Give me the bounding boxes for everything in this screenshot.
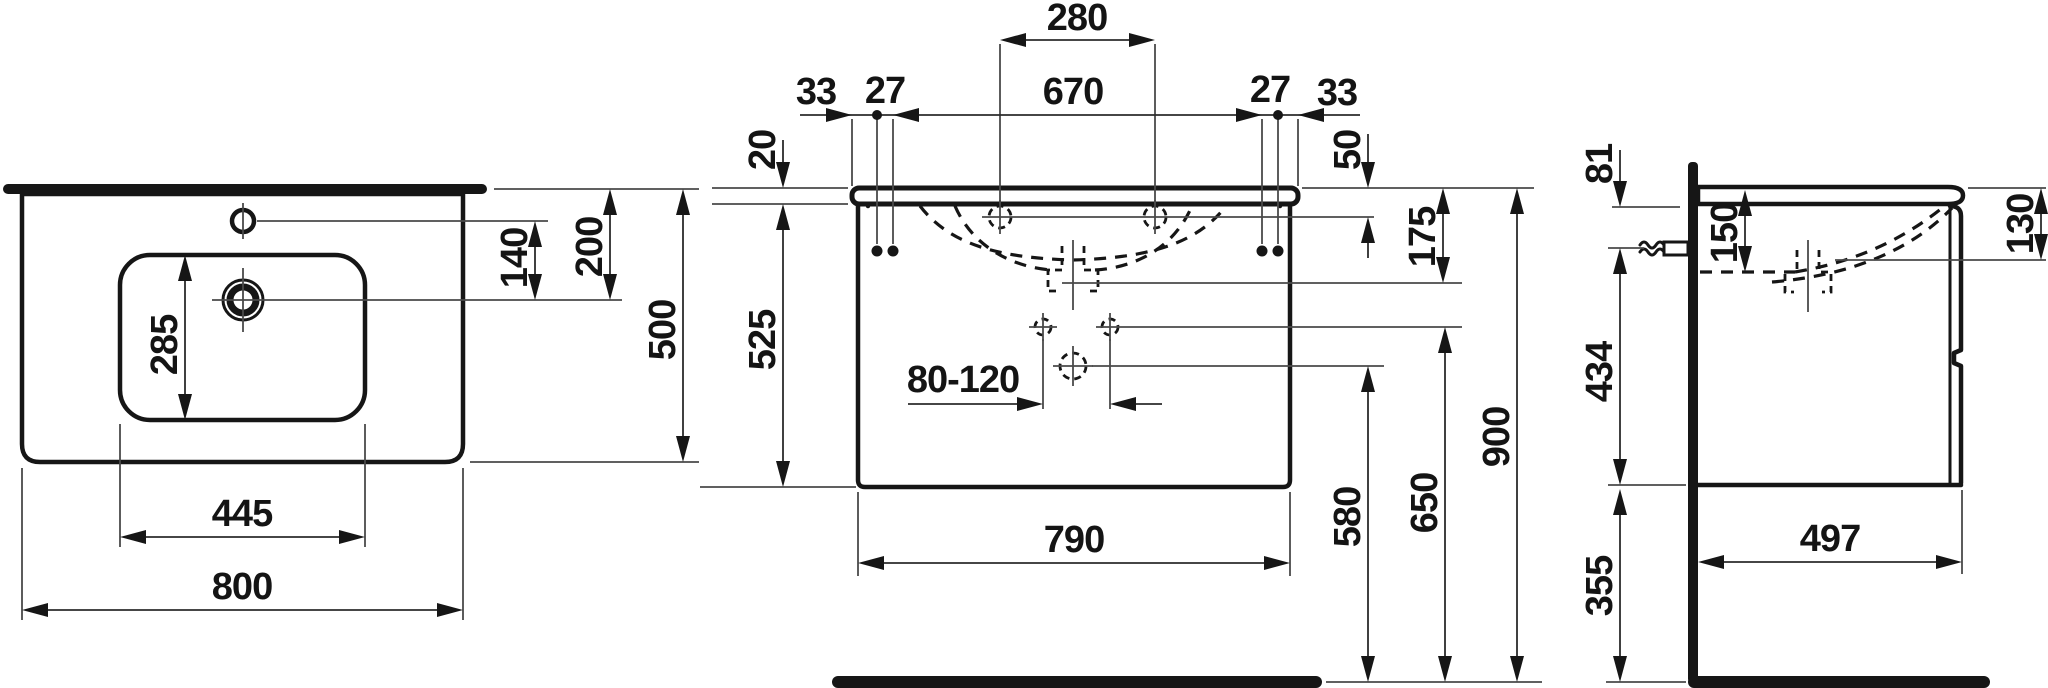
waste-outlet-circle — [1053, 346, 1093, 386]
dim-cabinet-height-525: 525 — [742, 204, 790, 487]
dim-label-790: 790 — [1044, 519, 1104, 561]
dim-label-497: 497 — [1800, 518, 1860, 560]
dim-rear-drain-200: 200 — [569, 189, 617, 300]
top-view: 285 140 200 500 445 — [3, 184, 699, 620]
floor-bar — [832, 676, 1322, 688]
dim-label-900: 900 — [1476, 407, 1518, 467]
dim-label-175: 175 — [1402, 206, 1444, 267]
dim-label-80-120: 80-120 — [907, 359, 1019, 401]
fixing-hole-dots — [872, 246, 1284, 257]
dim-slab-thickness-20: 20 — [742, 130, 790, 188]
technical-drawing-canvas: 285 140 200 500 445 — [0, 0, 2048, 688]
dim-rim-to-tap-50: 50 — [1327, 130, 1375, 258]
dim-label-27-right: 27 — [1250, 69, 1290, 111]
dim-cabinet-width-790: 790 — [858, 519, 1290, 570]
dim-rim-to-overflow-175: 175 — [1402, 188, 1450, 283]
dim-label-445: 445 — [212, 493, 273, 535]
dim-cabinet-depth-497: 497 — [1698, 518, 1962, 569]
dim-label-200: 200 — [569, 217, 611, 277]
dim-rim-to-floor-900: 900 — [1476, 188, 1524, 682]
dim-label-355: 355 — [1579, 555, 1621, 616]
dim-bowl-width-445: 445 — [120, 493, 365, 544]
floor-bar-side — [1688, 676, 1990, 688]
dim-fixing-to-floor-650: 650 — [1404, 327, 1452, 682]
dim-label-280: 280 — [1047, 0, 1107, 39]
dim-label-150: 150 — [1704, 203, 1746, 263]
dim-bracket-to-base-434: 434 — [1579, 274, 1627, 485]
dim-label-140: 140 — [494, 228, 536, 288]
dim-label-800: 800 — [212, 566, 272, 608]
dim-label-27-left: 27 — [865, 70, 905, 112]
dim-basin-depth-500: 500 — [642, 189, 690, 462]
dim-label-20: 20 — [742, 130, 784, 170]
dim-label-50: 50 — [1327, 130, 1369, 170]
dim-bowl-depth-285: 285 — [144, 255, 192, 420]
dim-chain-33-27-670: 33 27 670 27 33 — [796, 69, 1360, 122]
dim-tap-drain-140: 140 — [494, 221, 542, 300]
dim-label-500: 500 — [642, 300, 684, 360]
dim-label-434: 434 — [1579, 341, 1621, 402]
dim-label-525: 525 — [742, 309, 784, 370]
front-view: 33 27 670 27 33 280 20 525 — [700, 0, 1542, 688]
dim-label-81: 81 — [1579, 143, 1621, 184]
wall-plug-icon — [1640, 242, 1688, 255]
dim-basin-width-800: 800 — [22, 566, 463, 617]
washbasin-slab — [852, 188, 1298, 204]
washbasin-slab-side — [1698, 187, 1963, 204]
dim-base-to-floor-355: 355 — [1579, 489, 1627, 682]
dim-label-580: 580 — [1327, 487, 1369, 547]
dim-label-33-left: 33 — [796, 71, 836, 113]
side-view: 81 434 355 150 130 497 — [1579, 143, 2048, 688]
drain-hole — [212, 268, 622, 332]
dim-outlet-to-floor-580: 580 — [1327, 366, 1375, 682]
dim-label-650: 650 — [1404, 473, 1446, 533]
dim-rim-to-outlet-130: 130 — [2000, 188, 2048, 260]
dim-label-670: 670 — [1043, 71, 1103, 113]
siphon-fixing-holes — [1029, 313, 1124, 341]
dim-rim-to-bracket-81: 81 — [1579, 143, 1627, 274]
dim-label-130: 130 — [2000, 194, 2042, 254]
dim-label-285: 285 — [144, 314, 186, 375]
cabinet-outline — [858, 201, 1290, 487]
wall-line — [1688, 162, 1698, 683]
washbasin-technical-drawing: 285 140 200 500 445 — [0, 0, 2048, 688]
drain-trap — [1048, 240, 1098, 310]
dim-tap-spacing-280: 280 — [1000, 0, 1155, 47]
dim-label-33-right: 33 — [1317, 72, 1357, 114]
